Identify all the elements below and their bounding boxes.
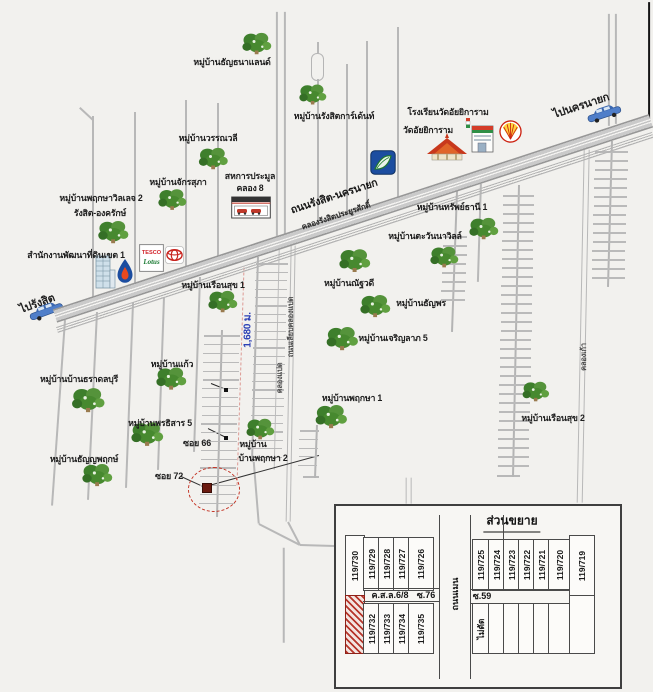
soi-rung	[502, 267, 533, 268]
label-kaew: หมู่บ้านแก้ว	[151, 357, 193, 371]
tree-icon	[326, 325, 359, 351]
soi-rung	[254, 331, 286, 332]
soi-rung	[254, 322, 286, 323]
label-charoenlap-5: หมู่บ้านเจริญลาภ 5	[358, 331, 427, 345]
soi-rung	[503, 204, 534, 205]
soi-66-label: ซอย 66	[183, 436, 211, 450]
road-segment	[284, 12, 286, 234]
soi-rung	[202, 406, 238, 407]
label-rangsit-garden: หมู่บ้านรังสิตการ์เด้นท์	[294, 109, 375, 123]
soi-rung	[500, 366, 531, 367]
soi-rung	[255, 305, 287, 306]
soi-rung	[254, 339, 286, 340]
plot-cell-119-730: 119/730	[345, 535, 365, 596]
tree-icon	[208, 289, 238, 313]
soi-rung	[442, 281, 466, 282]
soi-rung	[498, 447, 529, 448]
inset-plot-diagram: ส่วนขยาย 119/730 119/729 119/728 119/727…	[334, 504, 622, 689]
plot-cell-119-726: 119/726	[408, 537, 434, 591]
label-pruksa-village-2: หมู่บ้านพฤกษาวิลเลจ 2	[59, 191, 142, 205]
soi-rung	[255, 280, 287, 281]
road-segment	[193, 277, 201, 452]
main-road	[53, 114, 653, 323]
soi-rung	[255, 297, 287, 298]
tree-icon	[430, 244, 459, 269]
tree-icon	[95, 219, 132, 244]
soi-rung	[202, 397, 238, 398]
soi-rung	[299, 448, 318, 449]
inset-main-road-label: ถนนเมน	[448, 578, 462, 611]
target-plot-marker	[202, 483, 212, 493]
label-school-wat-aiyikaram: โรงเรียนวัดอัยยิการาม	[407, 105, 488, 119]
plot-cell-119-735: 119/735	[408, 603, 434, 654]
road-segment	[497, 475, 520, 477]
road-segment	[410, 478, 411, 504]
soi-rung	[253, 347, 285, 348]
soi-rung	[594, 205, 627, 206]
soi-rung	[299, 456, 318, 457]
soi-rung	[501, 285, 532, 286]
canal-rangsit-prayoonsak	[56, 132, 653, 333]
empty-plot-cell	[548, 603, 571, 654]
soi-rung	[498, 465, 529, 466]
tree-icon	[339, 246, 371, 274]
toyota-dealer-icon	[165, 246, 184, 264]
tree-icon	[360, 292, 391, 319]
road-segment	[317, 42, 319, 53]
soi-rung	[502, 276, 533, 277]
soi-rung	[592, 277, 625, 278]
soi-rung	[503, 195, 534, 196]
svg-text:TESCO: TESCO	[142, 250, 162, 256]
target-plot-circle-marker	[188, 467, 240, 512]
road-segment	[648, 2, 650, 128]
label-ruensuk-1: หมู่บ้านเรือนสุข 1	[181, 278, 244, 292]
soi-rung	[251, 415, 283, 416]
road-segment	[283, 548, 285, 643]
location-map: TESCOLotus ถนนรังสิต-นครนายก คลองรังสิตป…	[0, 0, 653, 692]
soi-rung	[300, 430, 319, 431]
label-khlong-8: คลอง 8	[237, 181, 264, 195]
soi-rung	[202, 388, 238, 389]
soi-rung	[499, 402, 530, 403]
distance-label: 1,680 ม.	[241, 312, 256, 348]
svg-text:Lotus: Lotus	[142, 258, 160, 266]
village-soi-road	[314, 425, 318, 478]
label-tharadol-buri: หมู่บ้านบ้านธราดลบุรี	[40, 372, 118, 386]
soi-rung	[203, 353, 239, 354]
soi-rung	[498, 456, 529, 457]
liab-khlong-paed-label: ถนนเลียบคลองแปด	[285, 297, 297, 358]
soi-rung	[502, 249, 533, 250]
inset-csl-road-label: ค.ส.ล.6/8	[371, 588, 408, 602]
tree-icon	[71, 386, 106, 413]
auction-house-icon	[231, 194, 271, 219]
highlighted-plot-cell	[345, 595, 365, 654]
soi-rung	[204, 344, 240, 345]
soi-rung	[592, 259, 625, 260]
khlong-paed-label: คลองแปด	[274, 363, 286, 394]
soi-rung	[594, 196, 627, 197]
soi-rung	[442, 272, 466, 273]
soi-rung	[500, 339, 531, 340]
label-mooban: หมู่บ้าน	[239, 437, 266, 451]
label-rangsit-ongkharak: รังสิต-องครักษ์	[74, 206, 126, 220]
soi-rung	[501, 294, 532, 295]
soi-rung	[502, 240, 533, 241]
tree-icon	[299, 81, 327, 107]
soi-rung	[441, 290, 465, 291]
soi-rung	[201, 459, 237, 460]
shell-station-icon	[499, 120, 522, 143]
label-thanyapruek: หมู่บ้านธัญญพฤกษ์	[50, 452, 118, 466]
plot-cell-119-720: 119/720	[548, 539, 571, 591]
soi-rung	[501, 303, 532, 304]
soi-rung	[255, 289, 287, 290]
soi-rung	[503, 231, 534, 232]
label-pruksa-1: หมู่บ้านพฤกษา 1	[322, 391, 382, 405]
soi-rung	[593, 241, 626, 242]
tree-icon	[158, 187, 187, 211]
soi-rung	[252, 398, 284, 399]
label-sapthani-1: หมู่บ้านทรัพย์ธานี 1	[417, 200, 487, 214]
road-segment	[217, 103, 219, 256]
soi-rung	[592, 250, 625, 251]
inset-main-road-left-line	[439, 515, 440, 679]
soi-rung	[203, 371, 239, 372]
soi-rung	[252, 406, 284, 407]
soi-rung	[500, 375, 531, 376]
soi-rung	[595, 169, 628, 170]
soi-rung	[501, 330, 532, 331]
convenience-store-icon	[465, 118, 495, 154]
label-wat-aiyikaram: วัดอัยยิการาม	[403, 123, 453, 137]
tree-icon	[315, 403, 348, 429]
road-segment	[276, 12, 278, 236]
soi-rung	[254, 314, 286, 315]
road-segment	[303, 476, 319, 478]
tree-icon	[522, 380, 550, 402]
tree-icon	[469, 215, 499, 241]
soi-rung	[202, 415, 238, 416]
label-ruensuk-2: หมู่บ้านเรือนสุข 2	[521, 411, 584, 425]
empty-plot-cell	[569, 595, 595, 654]
soi-rung	[201, 423, 237, 424]
plot-dot-2	[224, 436, 228, 440]
soi-rung	[595, 160, 628, 161]
road-segment	[405, 478, 406, 504]
soi-rung	[201, 432, 237, 433]
soi-rung	[501, 312, 532, 313]
soi-rung	[256, 272, 288, 273]
soi-rung	[204, 335, 240, 336]
soi-rung	[593, 214, 626, 215]
road-segment	[397, 27, 399, 197]
soi-rung	[592, 268, 625, 269]
soi-rung	[502, 258, 533, 259]
soi-rung	[498, 429, 529, 430]
soi-rung	[253, 356, 285, 357]
label-natthawadee: หมู่บ้านณัฐวดี	[324, 276, 374, 290]
road-loop	[311, 53, 324, 81]
label-thanthana-land: หมู่บ้านธัญธนาแลนด์	[193, 55, 270, 69]
road-segment	[51, 320, 66, 506]
inset-title: ส่วนขยาย	[483, 512, 540, 533]
label-thanyaporn: หมู่บ้านธัญพร	[396, 296, 446, 310]
soi-72-label: ซอย 72	[155, 469, 183, 483]
tree-icon	[242, 30, 272, 56]
label-baan-pruksa-2: บ้านพฤกษา 2	[238, 451, 287, 465]
inset-soi-59-label: ซ.59	[473, 589, 492, 603]
road-segment	[79, 107, 93, 120]
soi-rung	[503, 213, 534, 214]
soi-rung	[500, 357, 531, 358]
soi-rung	[498, 438, 529, 439]
inset-road-stub	[503, 515, 504, 539]
soi-rung	[593, 232, 626, 233]
soi-rung	[594, 178, 627, 179]
soi-rung	[298, 465, 317, 466]
soi-rung	[203, 362, 239, 363]
soi-rung	[503, 222, 534, 223]
soi-rung	[593, 223, 626, 224]
plot-cell-119-719: 119/719	[569, 535, 595, 597]
label-pornthisan-5: หมู่บ้านพรธิสาร 5	[128, 416, 192, 430]
khlong-kao-label: คลองเก้า	[578, 343, 590, 371]
soi-rung	[501, 321, 532, 322]
label-jakrasupha: หมู่บ้านจักรสุภา	[149, 175, 206, 189]
label-tawanna-ville: หมู่บ้านตะวันนาวิลล์	[388, 229, 461, 243]
inset-soi-76-label: ซ.76	[417, 588, 436, 602]
soi-rung	[299, 439, 318, 440]
soi-rung	[203, 379, 239, 380]
road-segment	[125, 303, 134, 488]
plot-dot-1	[224, 388, 228, 392]
soi-rung	[500, 348, 531, 349]
tesco-lotus-sign-icon: TESCOLotus	[139, 244, 164, 272]
label-wannawalee: หมู่บ้านวรรณวลี	[179, 131, 238, 145]
soi-rung	[594, 187, 627, 188]
tree-icon	[198, 146, 229, 170]
label-land-dev-office: สำนักงานพัฒนาที่ดินเขต 1	[27, 248, 125, 262]
ptt-station-icon	[370, 150, 396, 175]
